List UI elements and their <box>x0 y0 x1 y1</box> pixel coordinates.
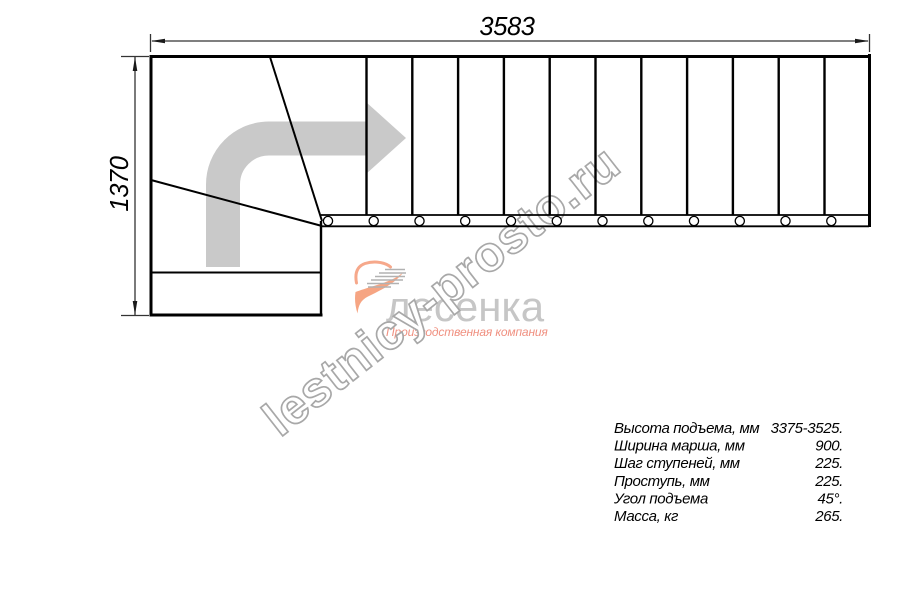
svg-text:Угол подъема: Угол подъема <box>613 490 708 507</box>
svg-text:3583: 3583 <box>479 13 534 41</box>
svg-text:265.: 265. <box>814 508 843 525</box>
svg-text:1370: 1370 <box>106 156 134 211</box>
svg-text:3375-3525.: 3375-3525. <box>771 420 843 437</box>
svg-text:45°.: 45°. <box>818 490 843 507</box>
svg-text:Высота подъема, мм: Высота подъема, мм <box>614 420 759 437</box>
svg-text:Масса, кг: Масса, кг <box>614 508 679 525</box>
svg-text:Шаг ступеней, мм: Шаг ступеней, мм <box>614 455 740 472</box>
svg-text:Проступь, мм: Проступь, мм <box>614 473 710 490</box>
svg-text:225.: 225. <box>814 455 843 472</box>
svg-text:900.: 900. <box>815 438 843 455</box>
svg-text:225.: 225. <box>814 473 843 490</box>
svg-text:Ширина марша, мм: Ширина марша, мм <box>614 438 745 455</box>
